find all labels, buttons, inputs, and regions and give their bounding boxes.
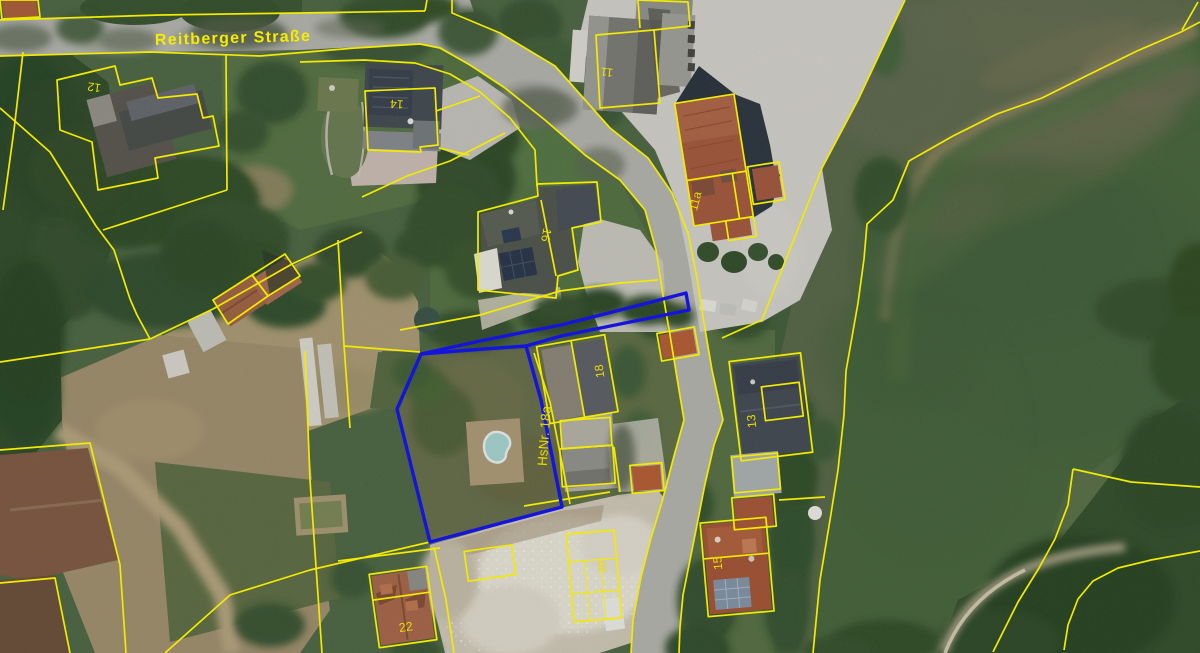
svg-text:13: 13	[744, 414, 759, 429]
svg-text:20: 20	[596, 560, 609, 573]
svg-text:18: 18	[592, 363, 608, 378]
svg-text:11: 11	[599, 64, 613, 79]
svg-text:12: 12	[86, 79, 101, 95]
svg-text:15: 15	[710, 556, 725, 571]
svg-text:16: 16	[538, 227, 554, 243]
svg-text:22: 22	[398, 619, 414, 635]
svg-text:14: 14	[389, 97, 404, 112]
